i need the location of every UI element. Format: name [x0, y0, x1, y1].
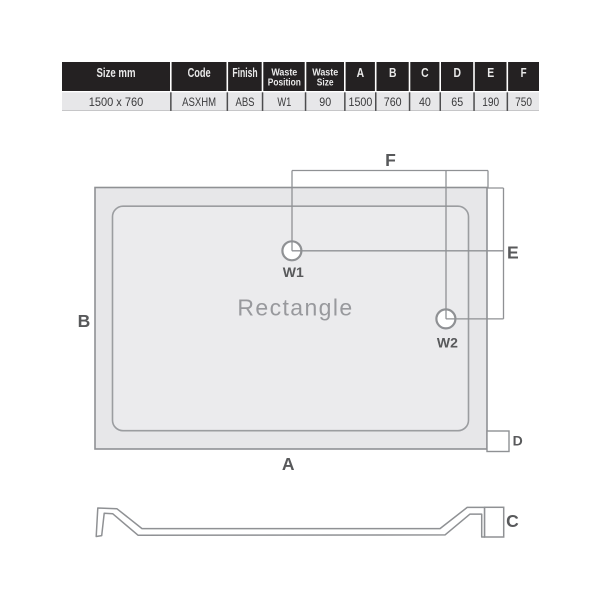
svg-text:Size mm: Size mm [97, 67, 136, 81]
svg-text:F: F [521, 67, 527, 81]
svg-text:C: C [421, 66, 429, 80]
svg-text:ABS: ABS [235, 96, 254, 109]
svg-text:65: 65 [451, 97, 463, 109]
svg-text:Size: Size [317, 76, 334, 88]
svg-text:D: D [513, 433, 523, 449]
svg-text:1500 x 760: 1500 x 760 [89, 97, 144, 109]
svg-text:W1: W1 [283, 264, 304, 280]
svg-text:190: 190 [482, 96, 499, 109]
svg-text:Rectangle: Rectangle [237, 294, 353, 320]
svg-text:750: 750 [515, 96, 532, 109]
svg-text:A: A [282, 454, 295, 474]
svg-text:E: E [487, 66, 494, 80]
svg-text:Position: Position [268, 76, 301, 88]
svg-text:W2: W2 [437, 335, 458, 351]
svg-text:Finish: Finish [232, 66, 257, 80]
svg-text:C: C [506, 511, 519, 531]
svg-text:W1: W1 [277, 97, 291, 109]
svg-text:Code: Code [188, 67, 211, 81]
svg-text:E: E [507, 243, 519, 263]
svg-text:90: 90 [319, 97, 331, 109]
svg-text:760: 760 [384, 97, 402, 109]
svg-text:D: D [453, 66, 461, 80]
svg-text:1500: 1500 [349, 97, 373, 109]
svg-text:B: B [389, 66, 397, 80]
svg-text:ASXHM: ASXHM [182, 96, 216, 109]
svg-text:B: B [78, 311, 91, 331]
svg-text:F: F [385, 150, 396, 170]
svg-text:A: A [357, 66, 365, 80]
svg-text:40: 40 [419, 97, 431, 109]
